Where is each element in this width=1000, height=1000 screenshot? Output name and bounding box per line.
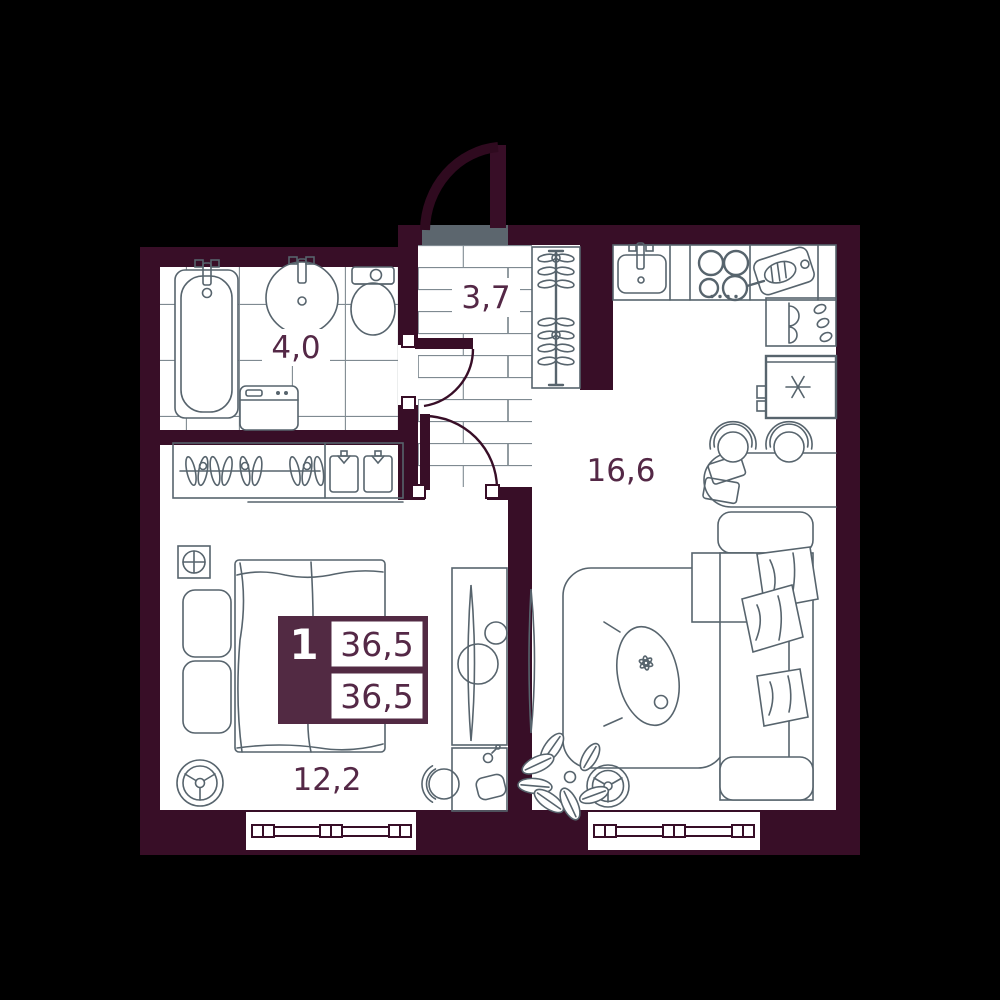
throw-blanket-icon <box>757 669 808 726</box>
bedroom-area-label: 12,2 <box>292 762 361 798</box>
entry-door-swing-arc <box>425 147 498 230</box>
toilet-icon <box>351 267 395 335</box>
pillow-icon <box>183 661 231 733</box>
living-area-label: 36,5 <box>340 677 413 716</box>
total-area-label: 36,5 <box>340 625 413 664</box>
hallway-area-label: 3,7 <box>461 280 510 316</box>
hallway-kitchen-wall <box>580 245 613 390</box>
pillow-icon <box>183 590 231 657</box>
bathroom-area-label: 4,0 <box>271 330 320 366</box>
bathtub-icon <box>175 260 238 418</box>
bedroom-window <box>246 812 416 850</box>
floor-plan-canvas: 4,0 <box>0 0 1000 1000</box>
apartment-number-label: 1 <box>289 620 318 669</box>
entry-door-leaf <box>490 145 506 228</box>
floor-plan-page: 4,0 <box>0 0 1000 1000</box>
kitchen-living-area-label: 16,6 <box>586 453 655 489</box>
washing-machine-icon <box>240 386 298 430</box>
ventilation-icon <box>178 546 210 578</box>
living-window <box>588 812 760 850</box>
apartment-badge: 1 36,5 36,5 <box>278 616 428 724</box>
entry <box>422 145 508 245</box>
bedroom-door-gap <box>425 487 487 500</box>
